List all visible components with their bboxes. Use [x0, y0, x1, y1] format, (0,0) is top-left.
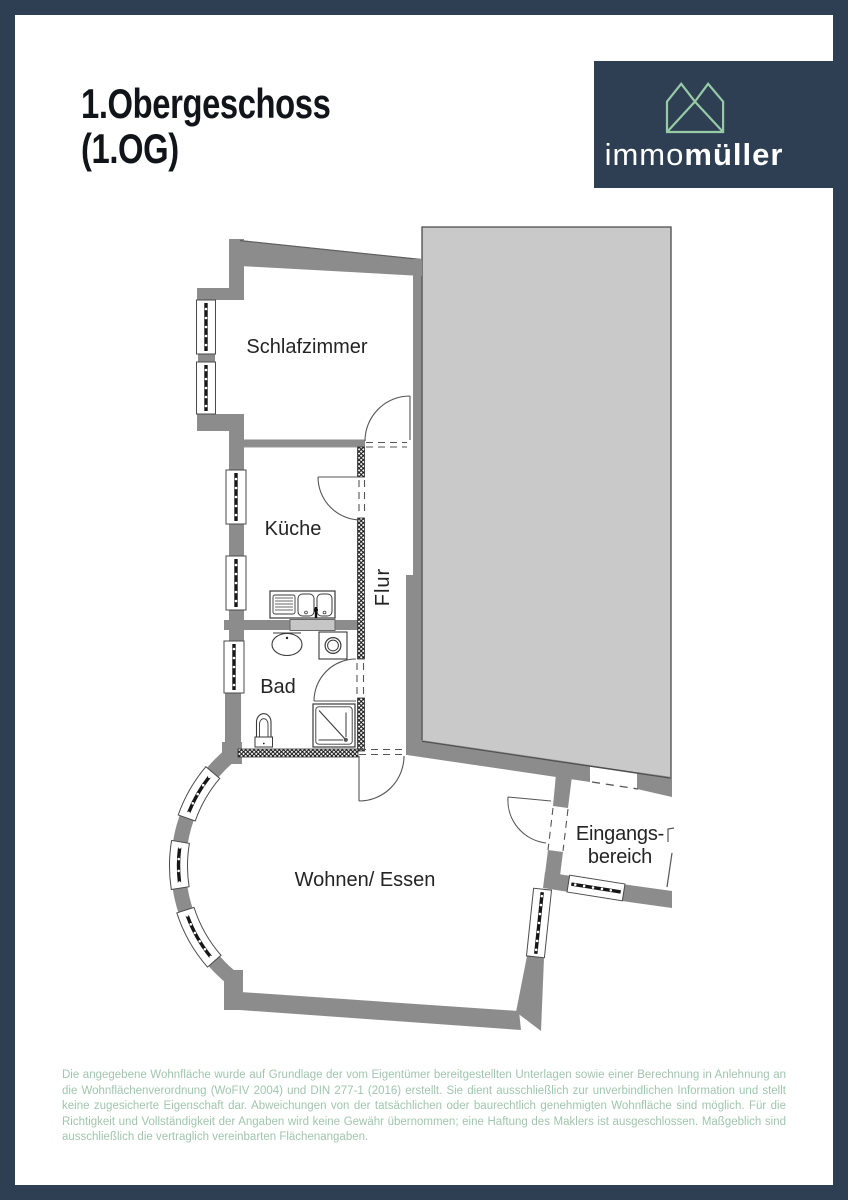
- svg-text:Küche: Küche: [265, 518, 322, 540]
- svg-text:Bad: Bad: [260, 676, 296, 698]
- svg-text:Eingangs-: Eingangs-: [576, 823, 664, 845]
- svg-text:Schlafzimmer: Schlafzimmer: [246, 336, 367, 358]
- svg-text:Flur: Flur: [372, 568, 394, 606]
- svg-text:bereich: bereich: [588, 846, 652, 868]
- svg-text:Wohnen/ Essen: Wohnen/ Essen: [295, 869, 436, 891]
